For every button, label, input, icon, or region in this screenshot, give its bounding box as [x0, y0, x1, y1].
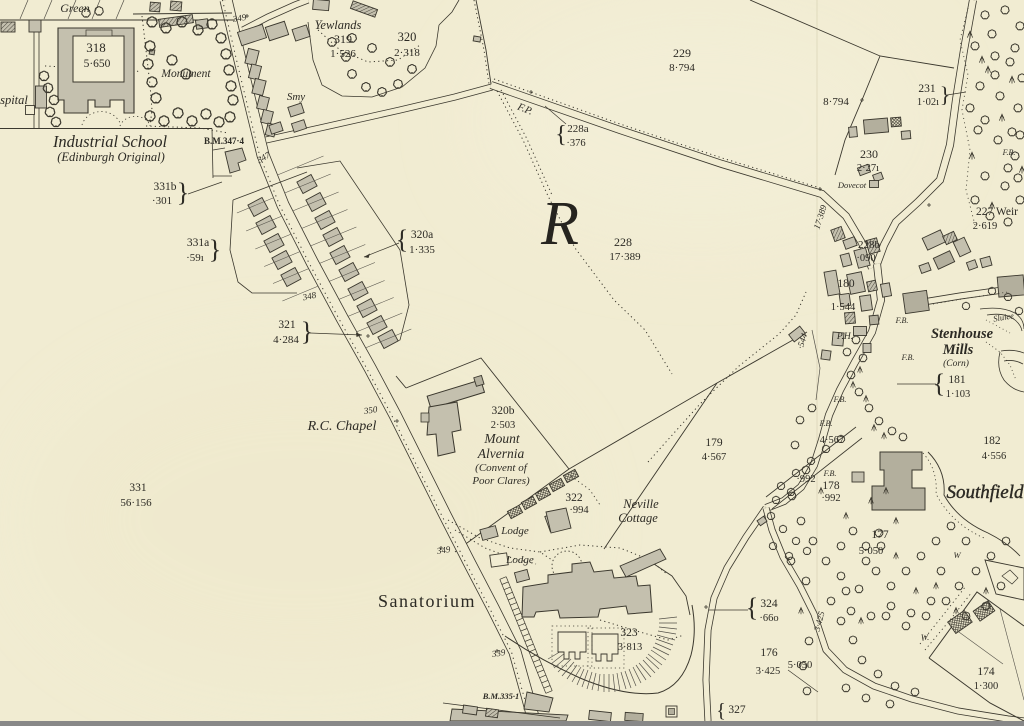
svg-text:1·335: 1·335 — [409, 244, 435, 256]
svg-text:1·300: 1·300 — [974, 681, 999, 692]
svg-text:}: } — [301, 317, 313, 346]
svg-text:4·284: 4·284 — [273, 334, 299, 346]
svg-text:Neville: Neville — [622, 497, 659, 511]
svg-text:4·556: 4·556 — [982, 451, 1007, 462]
svg-text:180: 180 — [837, 278, 855, 290]
svg-text:181: 181 — [948, 374, 966, 386]
svg-text:323: 323 — [620, 627, 638, 639]
svg-text:Mills: Mills — [942, 342, 974, 358]
svg-text:5·650: 5·650 — [84, 58, 111, 70]
svg-text:R.C. Chapel: R.C. Chapel — [307, 419, 377, 434]
svg-text:{: { — [746, 593, 758, 622]
svg-text:339: 339 — [490, 647, 506, 659]
svg-text:178: 178 — [822, 480, 840, 492]
svg-text:349: 349 — [435, 544, 451, 556]
svg-text:}: } — [209, 235, 221, 264]
svg-text:228a: 228a — [567, 123, 589, 135]
svg-text:Industrial School: Industrial School — [52, 132, 168, 151]
svg-text:R: R — [540, 190, 579, 258]
svg-text:327: 327 — [728, 704, 746, 716]
svg-text:{: { — [933, 369, 945, 398]
svg-text:·992: ·992 — [796, 474, 815, 485]
svg-text:2·619: 2·619 — [973, 221, 998, 232]
svg-text:318: 318 — [86, 40, 106, 55]
svg-text:350: 350 — [362, 404, 378, 416]
svg-text:F.B.: F.B. — [1002, 148, 1016, 157]
svg-text:P.H.: P.H. — [836, 332, 853, 342]
svg-text:·66o: ·66o — [759, 613, 778, 624]
svg-text:3·813: 3·813 — [618, 642, 643, 653]
svg-text:2·318: 2·318 — [394, 47, 420, 59]
svg-text:1·544: 1·544 — [831, 302, 856, 313]
svg-text:Yewlands: Yewlands — [315, 18, 362, 32]
svg-text:1·103: 1·103 — [946, 389, 971, 400]
svg-text:8·794: 8·794 — [669, 62, 695, 74]
svg-text:Stenhouse: Stenhouse — [931, 326, 994, 342]
svg-text:{: { — [396, 225, 408, 254]
svg-text:176: 176 — [760, 647, 778, 659]
svg-text:Mount: Mount — [483, 431, 520, 446]
svg-text:2·503: 2·503 — [491, 420, 516, 431]
svg-text:320a: 320a — [411, 229, 433, 241]
svg-text:(Convent of: (Convent of — [475, 462, 529, 474]
svg-text:B.M.335·1: B.M.335·1 — [482, 691, 520, 701]
svg-text:231: 231 — [918, 83, 936, 95]
svg-text:·994: ·994 — [569, 505, 589, 516]
svg-text:Lodge: Lodge — [505, 554, 534, 566]
svg-text:·376: ·376 — [566, 138, 585, 149]
svg-text:Smy: Smy — [287, 91, 305, 103]
svg-text:3·425: 3·425 — [756, 666, 781, 677]
svg-text:1·526: 1·526 — [330, 48, 356, 60]
svg-text:·301: ·301 — [152, 195, 172, 207]
svg-text:Cottage: Cottage — [618, 511, 658, 525]
svg-text:Southfield: Southfield — [946, 482, 1024, 503]
svg-text:4·567: 4·567 — [820, 435, 845, 446]
svg-text:Monument: Monument — [160, 68, 211, 80]
svg-text:·090: ·090 — [856, 253, 875, 264]
svg-text:322: 322 — [565, 492, 583, 504]
svg-text:Poor Clares): Poor Clares) — [471, 475, 530, 487]
svg-text:179: 179 — [705, 437, 723, 449]
svg-text:{: { — [716, 700, 726, 721]
svg-text:F.B.: F.B. — [895, 316, 909, 325]
svg-text:182: 182 — [983, 435, 1001, 447]
svg-text:Alvernia: Alvernia — [477, 446, 525, 461]
svg-text:W: W — [953, 550, 961, 560]
svg-text:331: 331 — [129, 482, 147, 494]
svg-text:229: 229 — [673, 46, 691, 60]
svg-text:324: 324 — [760, 598, 778, 610]
svg-text:F.B.: F.B. — [819, 419, 833, 428]
svg-text:321: 321 — [278, 319, 296, 331]
svg-text:320b: 320b — [492, 405, 515, 417]
svg-text:320: 320 — [398, 30, 417, 44]
svg-text:Lodge: Lodge — [500, 525, 529, 537]
svg-text:230: 230 — [860, 147, 878, 161]
svg-text:228b: 228b — [858, 239, 881, 251]
svg-text:}: } — [177, 178, 189, 207]
svg-text:{: { — [555, 122, 567, 148]
svg-text:227 Weir: 227 Weir — [976, 206, 1018, 218]
svg-text:331b: 331b — [154, 181, 177, 193]
svg-text:56·156: 56·156 — [120, 497, 152, 509]
svg-text:·992: ·992 — [821, 493, 840, 504]
svg-text:5·050: 5·050 — [788, 660, 813, 671]
svg-text:4·567: 4·567 — [702, 452, 727, 463]
svg-text:177: 177 — [871, 529, 889, 541]
svg-text:(Edinburgh Original): (Edinburgh Original) — [57, 150, 165, 164]
svg-text:B.M.347·4: B.M.347·4 — [204, 136, 244, 146]
svg-text:W.: W. — [921, 632, 929, 642]
svg-text:8·794: 8·794 — [823, 96, 849, 108]
svg-text:2·27ı: 2·27ı — [857, 163, 879, 174]
svg-text:331a: 331a — [187, 237, 209, 249]
svg-text:319: 319 — [334, 32, 352, 46]
svg-text:(Corn): (Corn) — [943, 358, 969, 369]
svg-text:Sanatorium: Sanatorium — [378, 591, 476, 611]
svg-text:spital: spital — [0, 93, 28, 107]
svg-text:174: 174 — [977, 666, 995, 678]
svg-text:Dovecot: Dovecot — [837, 180, 867, 190]
svg-text:F.B.: F.B. — [833, 395, 847, 404]
svg-text:F.B.: F.B. — [823, 469, 837, 478]
svg-text:1·02ı: 1·02ı — [917, 97, 939, 108]
svg-text:F.B.: F.B. — [901, 353, 915, 362]
svg-text:Green: Green — [60, 1, 90, 15]
svg-text:5·050: 5·050 — [859, 546, 884, 557]
svg-text:228: 228 — [614, 235, 632, 249]
svg-text:·59ı: ·59ı — [186, 252, 204, 264]
svg-text:17·389: 17·389 — [609, 251, 641, 263]
